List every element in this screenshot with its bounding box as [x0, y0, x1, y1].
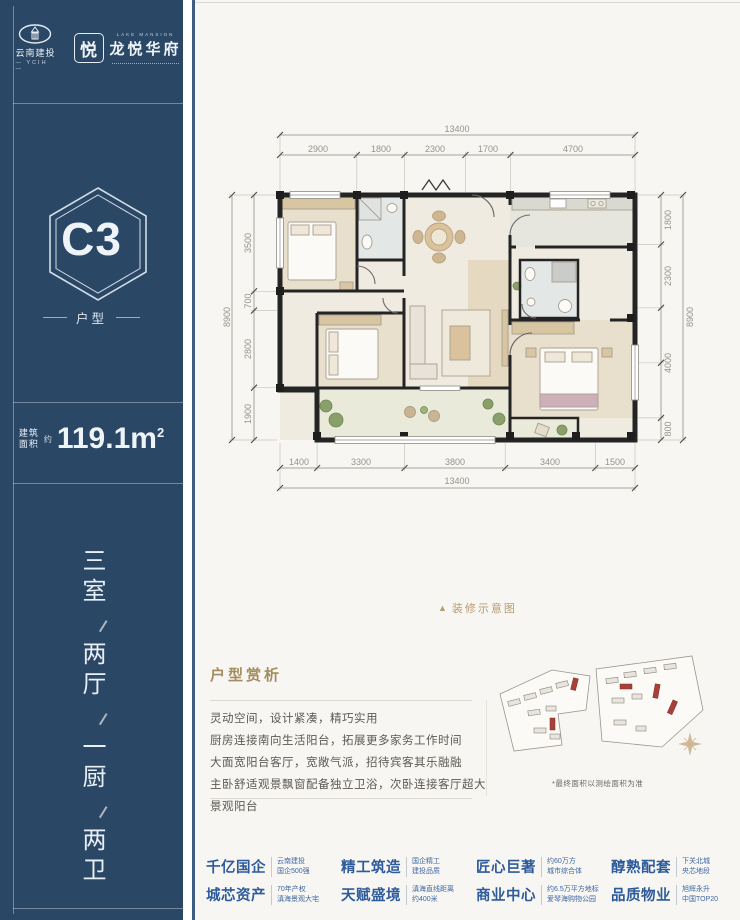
- brochure-page: 云南建投 — YCIH — 悦 LAKE MANSION 龙悦华府 C3: [0, 0, 740, 920]
- area-superscript: 2: [157, 425, 164, 440]
- slash-divider: [98, 620, 107, 632]
- developer-emblem-icon: [18, 24, 52, 44]
- feature-sub: 下关北城: [682, 857, 710, 866]
- plan-caption-text: 装修示意图: [452, 600, 517, 616]
- logo-row: 云南建投 — YCIH — 悦 LAKE MANSION 龙悦华府: [16, 24, 181, 72]
- unit-label-rule: [43, 317, 67, 318]
- sidebar-divider: [13, 483, 183, 484]
- unit-label-rule: [116, 317, 140, 318]
- dim-top-seg: 4700: [563, 144, 583, 154]
- feature-sub: 云南建投: [277, 857, 310, 866]
- slash-divider: [98, 713, 107, 725]
- dim-left-seg: 3500: [243, 233, 253, 253]
- dim-top-seg: 1800: [371, 144, 391, 154]
- feature-sub: 建投品质: [412, 867, 440, 876]
- dim-top-seg: 2900: [308, 144, 328, 154]
- dim-right-seg: 2300: [663, 266, 673, 286]
- area-label-bottom: 面积: [19, 439, 39, 450]
- feature-sub: 滇海景观大宅: [277, 895, 319, 904]
- feature-item: 醇熟配套 下关北城央芯地段: [611, 856, 736, 877]
- feature-label: 匠心巨著: [476, 856, 536, 877]
- unit-label-row: 户型: [0, 308, 183, 327]
- feature-sub: 旭辉永升: [682, 885, 718, 894]
- area-label-top: 建筑: [19, 428, 39, 439]
- dim-top-total: 13400: [444, 124, 469, 134]
- project-name-en: LAKE MANSION: [117, 32, 175, 37]
- feature-label: 城芯资产: [206, 884, 266, 905]
- unit-code: C3: [0, 216, 183, 262]
- dim-right-seg: 800: [663, 421, 673, 436]
- unit-label: 户型: [76, 308, 107, 327]
- slash-divider: [98, 806, 107, 818]
- feature-label: 品质物业: [611, 884, 671, 905]
- developer-name: 云南建投: [15, 46, 55, 59]
- dim-left-total: 8900: [222, 307, 232, 327]
- floorplan-drawing: [220, 110, 710, 510]
- dim-left-seg: 1900: [243, 404, 253, 424]
- feature-sub: 城市综合体: [547, 867, 582, 876]
- feature-divider: [406, 857, 407, 877]
- feature-divider: [406, 885, 407, 905]
- plan-caption: ▲ 装修示意图: [438, 600, 517, 616]
- feature-sub: 约6.5万平方地标: [547, 885, 599, 894]
- feature-sub: 国企精工: [412, 857, 440, 866]
- dim-right-seg: 4000: [663, 353, 673, 373]
- feature-label: 天赋盛境: [341, 884, 401, 905]
- dim-bottom-seg: 3300: [351, 457, 371, 467]
- sidebar-divider: [13, 402, 183, 403]
- feature-label: 商业中心: [476, 884, 536, 905]
- sidebar-gap: [183, 0, 192, 920]
- dim-right-total: 8900: [685, 307, 695, 327]
- floorplan-figure: 13400 2900 1800 2300 1700 4700 1400 3300…: [220, 110, 710, 510]
- feature-grid: 千亿国企 云南建投国企500强 精工筑造 国企精工建投品质 匠心巨著 约60万方…: [206, 856, 736, 905]
- analysis-line: 主卧舒适观景飘窗配备独立卫浴，次卧连接客厅超大景观阳台: [210, 774, 490, 818]
- analysis-title: 户型赏析: [210, 664, 282, 685]
- sidebar-edge-line: [192, 0, 195, 920]
- feature-item: 匠心巨著 约60万方城市综合体: [476, 856, 601, 877]
- feature-label: 精工筑造: [341, 856, 401, 877]
- project-name: 龙悦华府: [110, 38, 182, 59]
- feature-divider: [541, 885, 542, 905]
- layout-rooms: 三室: [74, 548, 109, 608]
- layout-kitchen: 一厨: [74, 734, 109, 794]
- triangle-icon: ▲: [438, 603, 447, 613]
- analysis-divider: [486, 700, 487, 796]
- feature-item: 精工筑造 国企精工建投品质: [341, 856, 466, 877]
- layout-halls: 两厅: [74, 641, 109, 701]
- feature-divider: [676, 857, 677, 877]
- feature-divider: [541, 857, 542, 877]
- dim-bottom-seg: 1500: [605, 457, 625, 467]
- sidebar-divider: [13, 908, 183, 909]
- feature-sub: 中国TOP20: [682, 895, 718, 904]
- siteplan-note: *最终面积以测绘面积为准: [552, 778, 643, 789]
- feature-sub: 约60万方: [547, 857, 582, 866]
- feature-divider: [271, 885, 272, 905]
- area-approx: 约: [44, 434, 52, 445]
- siteplan-drawing: [494, 648, 714, 773]
- dim-right-seg: 1800: [663, 210, 673, 230]
- feature-divider: [271, 857, 272, 877]
- analysis-line: 灵动空间，设计紧凑，精巧实用: [210, 708, 490, 730]
- feature-item: 天赋盛境 滇海直线距离约400米: [341, 884, 466, 905]
- developer-abbr: — YCIH —: [15, 60, 55, 72]
- dim-bottom-seg: 3800: [445, 457, 465, 467]
- dim-bottom-seg: 1400: [289, 457, 309, 467]
- layout-summary: 三室 两厅 一厨 两卫: [0, 548, 183, 887]
- analysis-line: 大面宽阳台客厅，宽敞气派，招待宾客其乐融融: [210, 752, 490, 774]
- feature-item: 城芯资产 70年产权滇海景观大宅: [206, 884, 331, 905]
- feature-sub: 约400米: [412, 895, 454, 904]
- sidebar: 云南建投 — YCIH — 悦 LAKE MANSION 龙悦华府 C3: [0, 0, 183, 920]
- area-block: 建筑 面积 约 119.1m2: [0, 424, 183, 454]
- feature-sub: 国企500强: [277, 867, 310, 876]
- dim-bottom-total: 13400: [444, 476, 469, 486]
- feature-sub: 爱琴海购物公园: [547, 895, 599, 904]
- analysis-body: 灵动空间，设计紧凑，精巧实用 厨房连接南向生活阳台，拓展更多家务工作时间 大面宽…: [210, 708, 490, 818]
- dim-top-seg: 1700: [478, 144, 498, 154]
- feature-label: 千亿国企: [206, 856, 266, 877]
- analysis-rule: [210, 798, 472, 799]
- area-value: 119.1m2: [57, 424, 164, 454]
- feature-item: 品质物业 旭辉永升中国TOP20: [611, 884, 736, 905]
- feature-sub: 央芯地段: [682, 867, 710, 876]
- analysis-rule: [210, 700, 472, 701]
- dim-bottom-seg: 3400: [540, 457, 560, 467]
- feature-label: 醇熟配套: [611, 856, 671, 877]
- siteplan-map: [494, 648, 714, 773]
- sidebar-divider: [13, 103, 183, 104]
- project-logo: 悦 LAKE MANSION 龙悦华府: [74, 32, 182, 64]
- dim-left-seg: 2800: [243, 339, 253, 359]
- feature-divider: [676, 885, 677, 905]
- feature-item: 商业中心 约6.5万平方地标爱琴海购物公园: [476, 884, 601, 905]
- dim-left-seg: 700: [243, 293, 253, 308]
- analysis-line: 厨房连接南向生活阳台，拓展更多家务工作时间: [210, 730, 490, 752]
- dim-top-seg: 2300: [425, 144, 445, 154]
- layout-baths: 两卫: [74, 827, 109, 887]
- feature-sub: 70年产权: [277, 885, 319, 894]
- project-tagline-rule: [112, 63, 178, 64]
- feature-item: 千亿国企 云南建投国企500强: [206, 856, 331, 877]
- project-mark-icon: 悦: [74, 33, 104, 63]
- developer-logo: 云南建投 — YCIH —: [15, 24, 55, 72]
- feature-sub: 滇海直线距离: [412, 885, 454, 894]
